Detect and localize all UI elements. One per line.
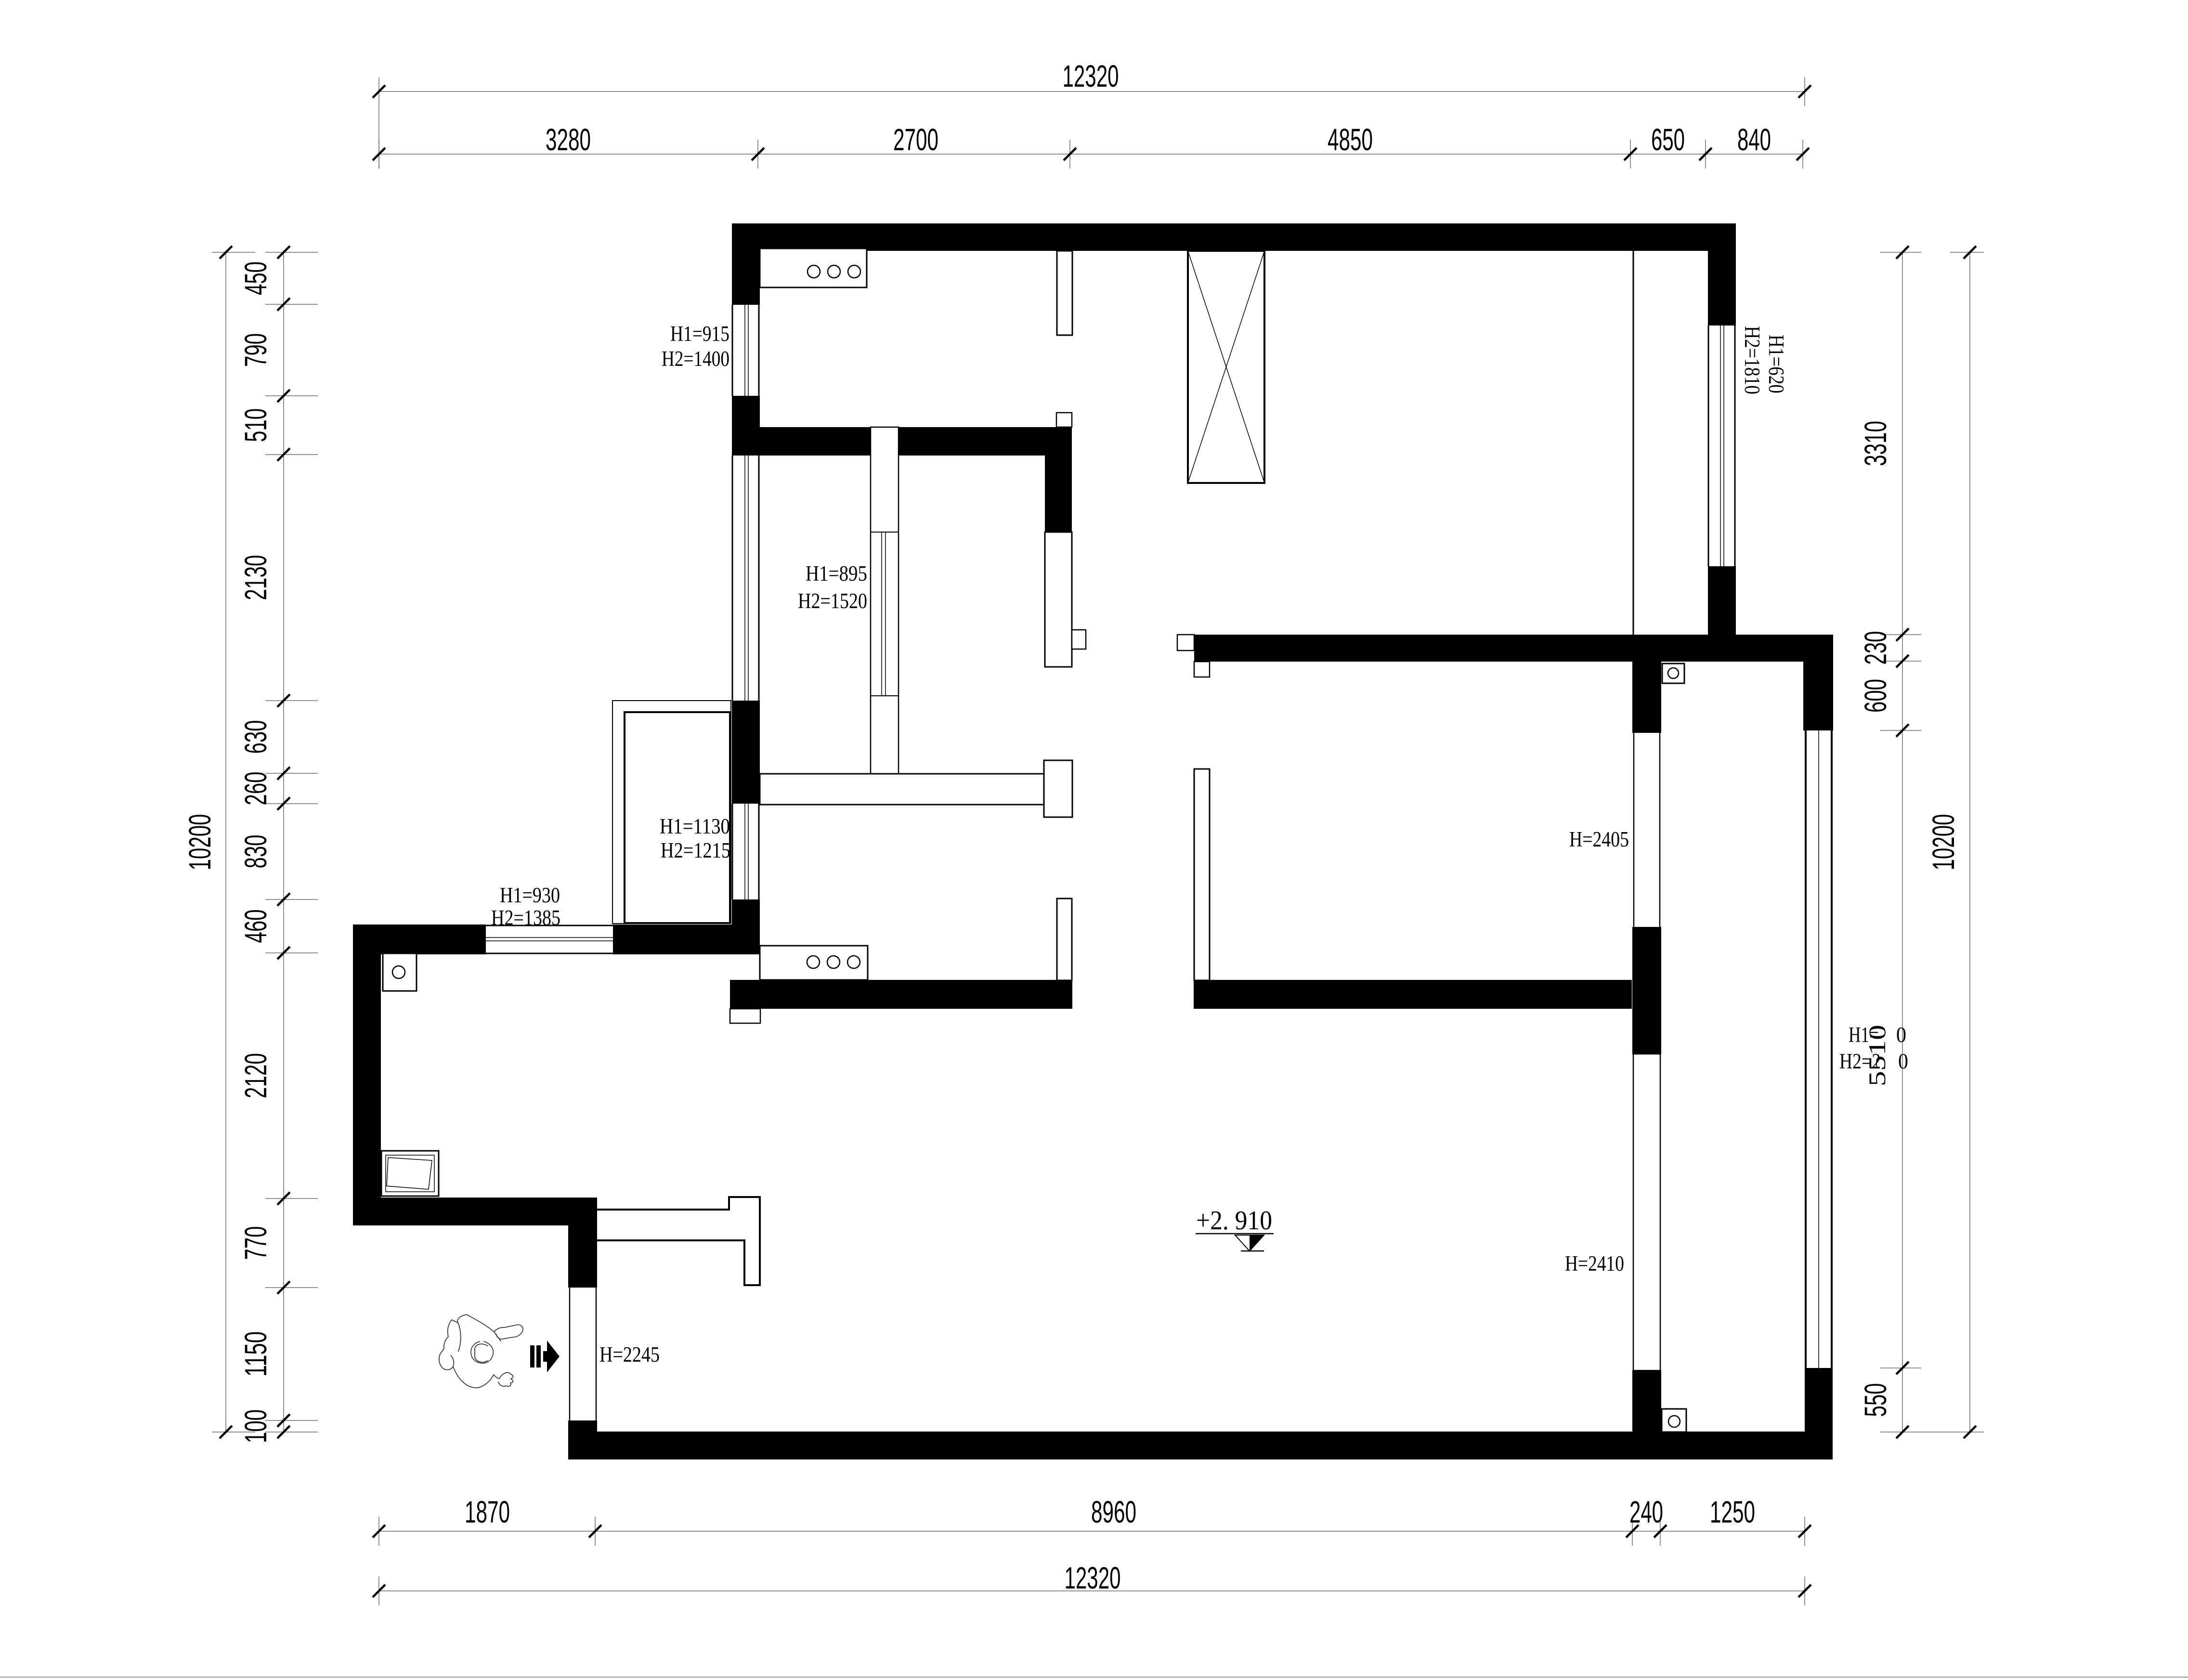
svg-text:510: 510 (238, 408, 273, 442)
svg-text:650: 650 (1651, 122, 1685, 157)
svg-text:H=2245: H=2245 (599, 1342, 660, 1367)
svg-text:0: 0 (1898, 1049, 1908, 1073)
svg-text:600: 600 (1858, 679, 1893, 713)
svg-text:550: 550 (1858, 1383, 1893, 1417)
svg-text:830: 830 (238, 835, 273, 869)
svg-text:+2. 910: +2. 910 (1196, 1206, 1272, 1236)
svg-text:1150: 1150 (238, 1331, 273, 1377)
svg-text:H2=2: H2=2 (1839, 1049, 1881, 1073)
svg-text:240: 240 (1629, 1495, 1663, 1529)
svg-text:630: 630 (238, 720, 273, 754)
svg-text:H2=1215: H2=1215 (661, 838, 730, 862)
svg-text:4850: 4850 (1328, 122, 1373, 157)
svg-text:H2=1400: H2=1400 (662, 347, 729, 371)
svg-text:12320: 12320 (1063, 59, 1119, 93)
svg-text:100: 100 (238, 1409, 273, 1443)
svg-text:H2=1520: H2=1520 (798, 589, 867, 613)
svg-text:H1=930: H1=930 (500, 883, 560, 907)
svg-text:460: 460 (238, 910, 273, 943)
svg-text:260: 260 (238, 772, 273, 806)
svg-text:1250: 1250 (1710, 1495, 1755, 1529)
svg-text:H2=1385: H2=1385 (491, 906, 560, 930)
svg-text:790: 790 (238, 333, 273, 367)
svg-text:2120: 2120 (238, 1053, 273, 1098)
svg-text:12320: 12320 (1065, 1561, 1121, 1595)
svg-text:H1=620: H1=620 (1764, 335, 1788, 393)
svg-text:230: 230 (1858, 631, 1893, 665)
svg-text:3310: 3310 (1858, 421, 1893, 466)
svg-text:H=2410: H=2410 (1565, 1251, 1624, 1276)
svg-text:H1=: H1= (1849, 1023, 1879, 1047)
svg-text:840: 840 (1737, 122, 1771, 157)
svg-text:3280: 3280 (546, 122, 591, 157)
svg-text:H1=915: H1=915 (670, 322, 729, 346)
svg-text:H=2405: H=2405 (1569, 827, 1629, 851)
svg-text:H1=1130: H1=1130 (660, 814, 730, 838)
svg-text:2130: 2130 (238, 555, 273, 600)
svg-text:10200: 10200 (1926, 814, 1961, 871)
svg-text:8960: 8960 (1091, 1495, 1136, 1529)
svg-text:1870: 1870 (465, 1495, 510, 1529)
svg-text:450: 450 (238, 261, 273, 295)
svg-text:0: 0 (1896, 1023, 1906, 1047)
svg-text:10200: 10200 (182, 814, 217, 871)
svg-text:H1=895: H1=895 (806, 561, 867, 586)
svg-text:2700: 2700 (893, 122, 938, 157)
svg-text:770: 770 (238, 1226, 273, 1260)
svg-text:H2=1810: H2=1810 (1740, 326, 1764, 394)
